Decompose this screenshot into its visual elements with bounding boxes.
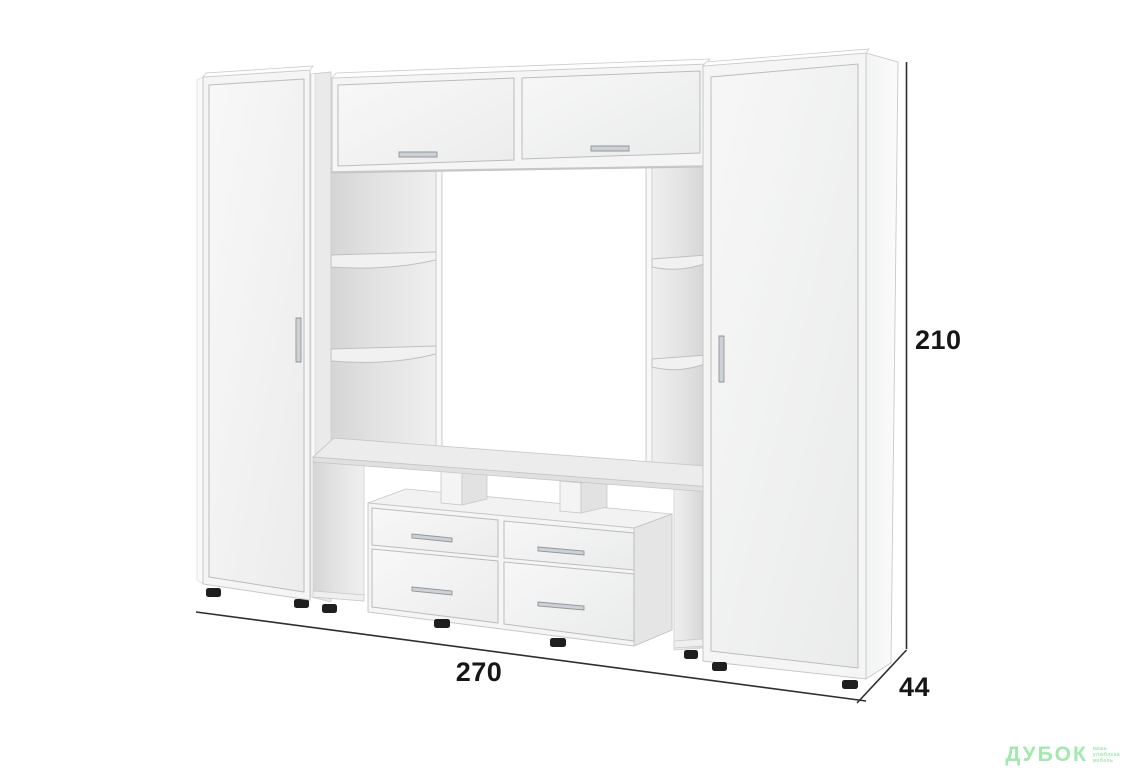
- left-wardrobe-side-edge: [197, 77, 203, 584]
- furniture-illustration: 210 270 44: [0, 0, 1130, 773]
- top-cabinet-left-handle: [399, 152, 437, 157]
- watermark-tagline: ваша улюблена мебель: [1093, 746, 1120, 764]
- chest-right-side: [634, 514, 672, 646]
- watermark-brand: ДУБОК: [1005, 744, 1088, 765]
- right-wardrobe-door: [711, 64, 858, 668]
- product-image: 210 270 44 ДУБОК ваша улюблена мебель: [0, 0, 1130, 773]
- foot: [322, 604, 337, 613]
- height-dimension-label: 210: [915, 325, 962, 355]
- stand-right-bottom-board: [674, 639, 703, 648]
- right-shelf-column: [646, 164, 707, 466]
- width-dimension-label: 270: [456, 657, 503, 687]
- foot: [294, 599, 309, 608]
- foot: [550, 638, 566, 647]
- stand-right-compartment: [674, 487, 703, 650]
- niche-left-edge-panel: [436, 168, 442, 449]
- tv-niche: [442, 172, 646, 442]
- stand-left-compartment: [313, 461, 364, 601]
- right-shelf-column-interior: [652, 164, 706, 466]
- top-cabinet-right-handle: [591, 146, 629, 151]
- top-cabinets: [332, 59, 710, 173]
- left-shelf-column-interior: [331, 169, 437, 449]
- left-wardrobe: [197, 66, 313, 600]
- right-wardrobe-side-panel: [866, 53, 898, 679]
- left-wardrobe-door: [209, 79, 304, 592]
- foot: [842, 680, 858, 689]
- depth-dimension-label: 44: [899, 672, 930, 702]
- right-wardrobe-handle: [719, 336, 724, 382]
- watermark-tagline-line: мебель: [1093, 758, 1120, 764]
- niche-right-edge-panel: [646, 167, 652, 463]
- foot: [712, 662, 727, 671]
- foot: [206, 588, 221, 597]
- right-wardrobe: [703, 49, 898, 689]
- foot: [684, 650, 698, 659]
- left-wardrobe-handle: [296, 318, 301, 362]
- drawer-chest: [368, 467, 672, 646]
- tv-stand: [313, 438, 710, 650]
- foot: [434, 619, 450, 628]
- watermark: ДУБОК ваша улюблена мебель: [1005, 744, 1120, 765]
